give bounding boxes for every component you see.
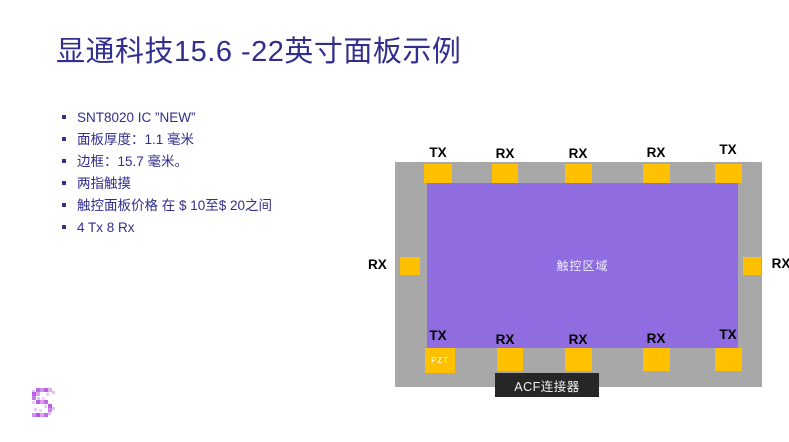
tx-pad (715, 164, 742, 183)
rx-pad (743, 257, 761, 275)
bullet-item: 触控面板价格 在 $ 10至$ 20之间 (62, 195, 402, 217)
bullet-list: SNT8020 IC ”NEW” 面板厚度：1.1 毫米 边框：15.7 毫米。… (62, 107, 402, 239)
pzt-pad: PZT (425, 348, 455, 373)
rx-label: RX (368, 257, 394, 272)
rx-label: RX (563, 332, 593, 347)
bullet-item: 两指触摸 (62, 173, 402, 195)
touch-area: 触控区域 (427, 183, 738, 348)
rx-pad (565, 348, 592, 371)
tx-label: TX (713, 327, 743, 342)
rx-label: RX (490, 146, 520, 161)
rx-pad (400, 257, 420, 275)
acf-label: ACF连接器 (514, 376, 580, 395)
rx-pad (643, 348, 670, 371)
slide: { "slide": { "title": "显通科技15.6 -22英寸面板示… (0, 0, 789, 442)
bullet-item: 4 Tx 8 Rx (62, 217, 402, 239)
slide-title: 显通科技15.6 -22英寸面板示例 (56, 28, 461, 70)
sentons-logo-icon (32, 388, 56, 419)
touch-area-label: 触控区域 (556, 257, 608, 274)
tx-pad (715, 348, 742, 371)
rx-pad (492, 164, 518, 183)
tx-label: TX (713, 142, 743, 157)
rx-pad (643, 164, 670, 183)
pzt-label: PZT (431, 356, 449, 365)
rx-label: RX (490, 332, 520, 347)
rx-label: RX (641, 145, 671, 160)
tx-pad (424, 164, 452, 183)
rx-label: RX (766, 256, 789, 271)
panel-diagram: 触控区域 TX RX RX RX TX RX RX TX RX RX RX TX… (370, 140, 789, 402)
sentons-logo (32, 388, 56, 419)
rx-label: RX (563, 146, 593, 161)
rx-pad (565, 164, 592, 183)
acf-connector: ACF连接器 (495, 373, 599, 397)
tx-label: TX (423, 145, 453, 160)
rx-label: RX (641, 331, 671, 346)
tx-label: TX (423, 328, 453, 343)
rx-pad (497, 348, 523, 371)
bullet-item: 面板厚度：1.1 毫米 (62, 129, 402, 151)
bullet-item: SNT8020 IC ”NEW” (62, 107, 402, 129)
bullet-item: 边框：15.7 毫米。 (62, 151, 402, 173)
